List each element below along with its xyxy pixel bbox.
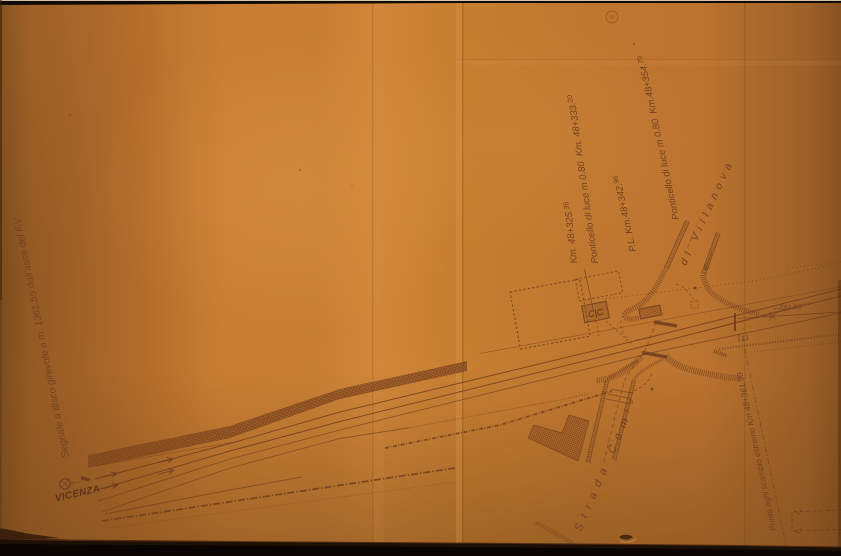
svg-text:11: 11 xyxy=(741,333,750,343)
